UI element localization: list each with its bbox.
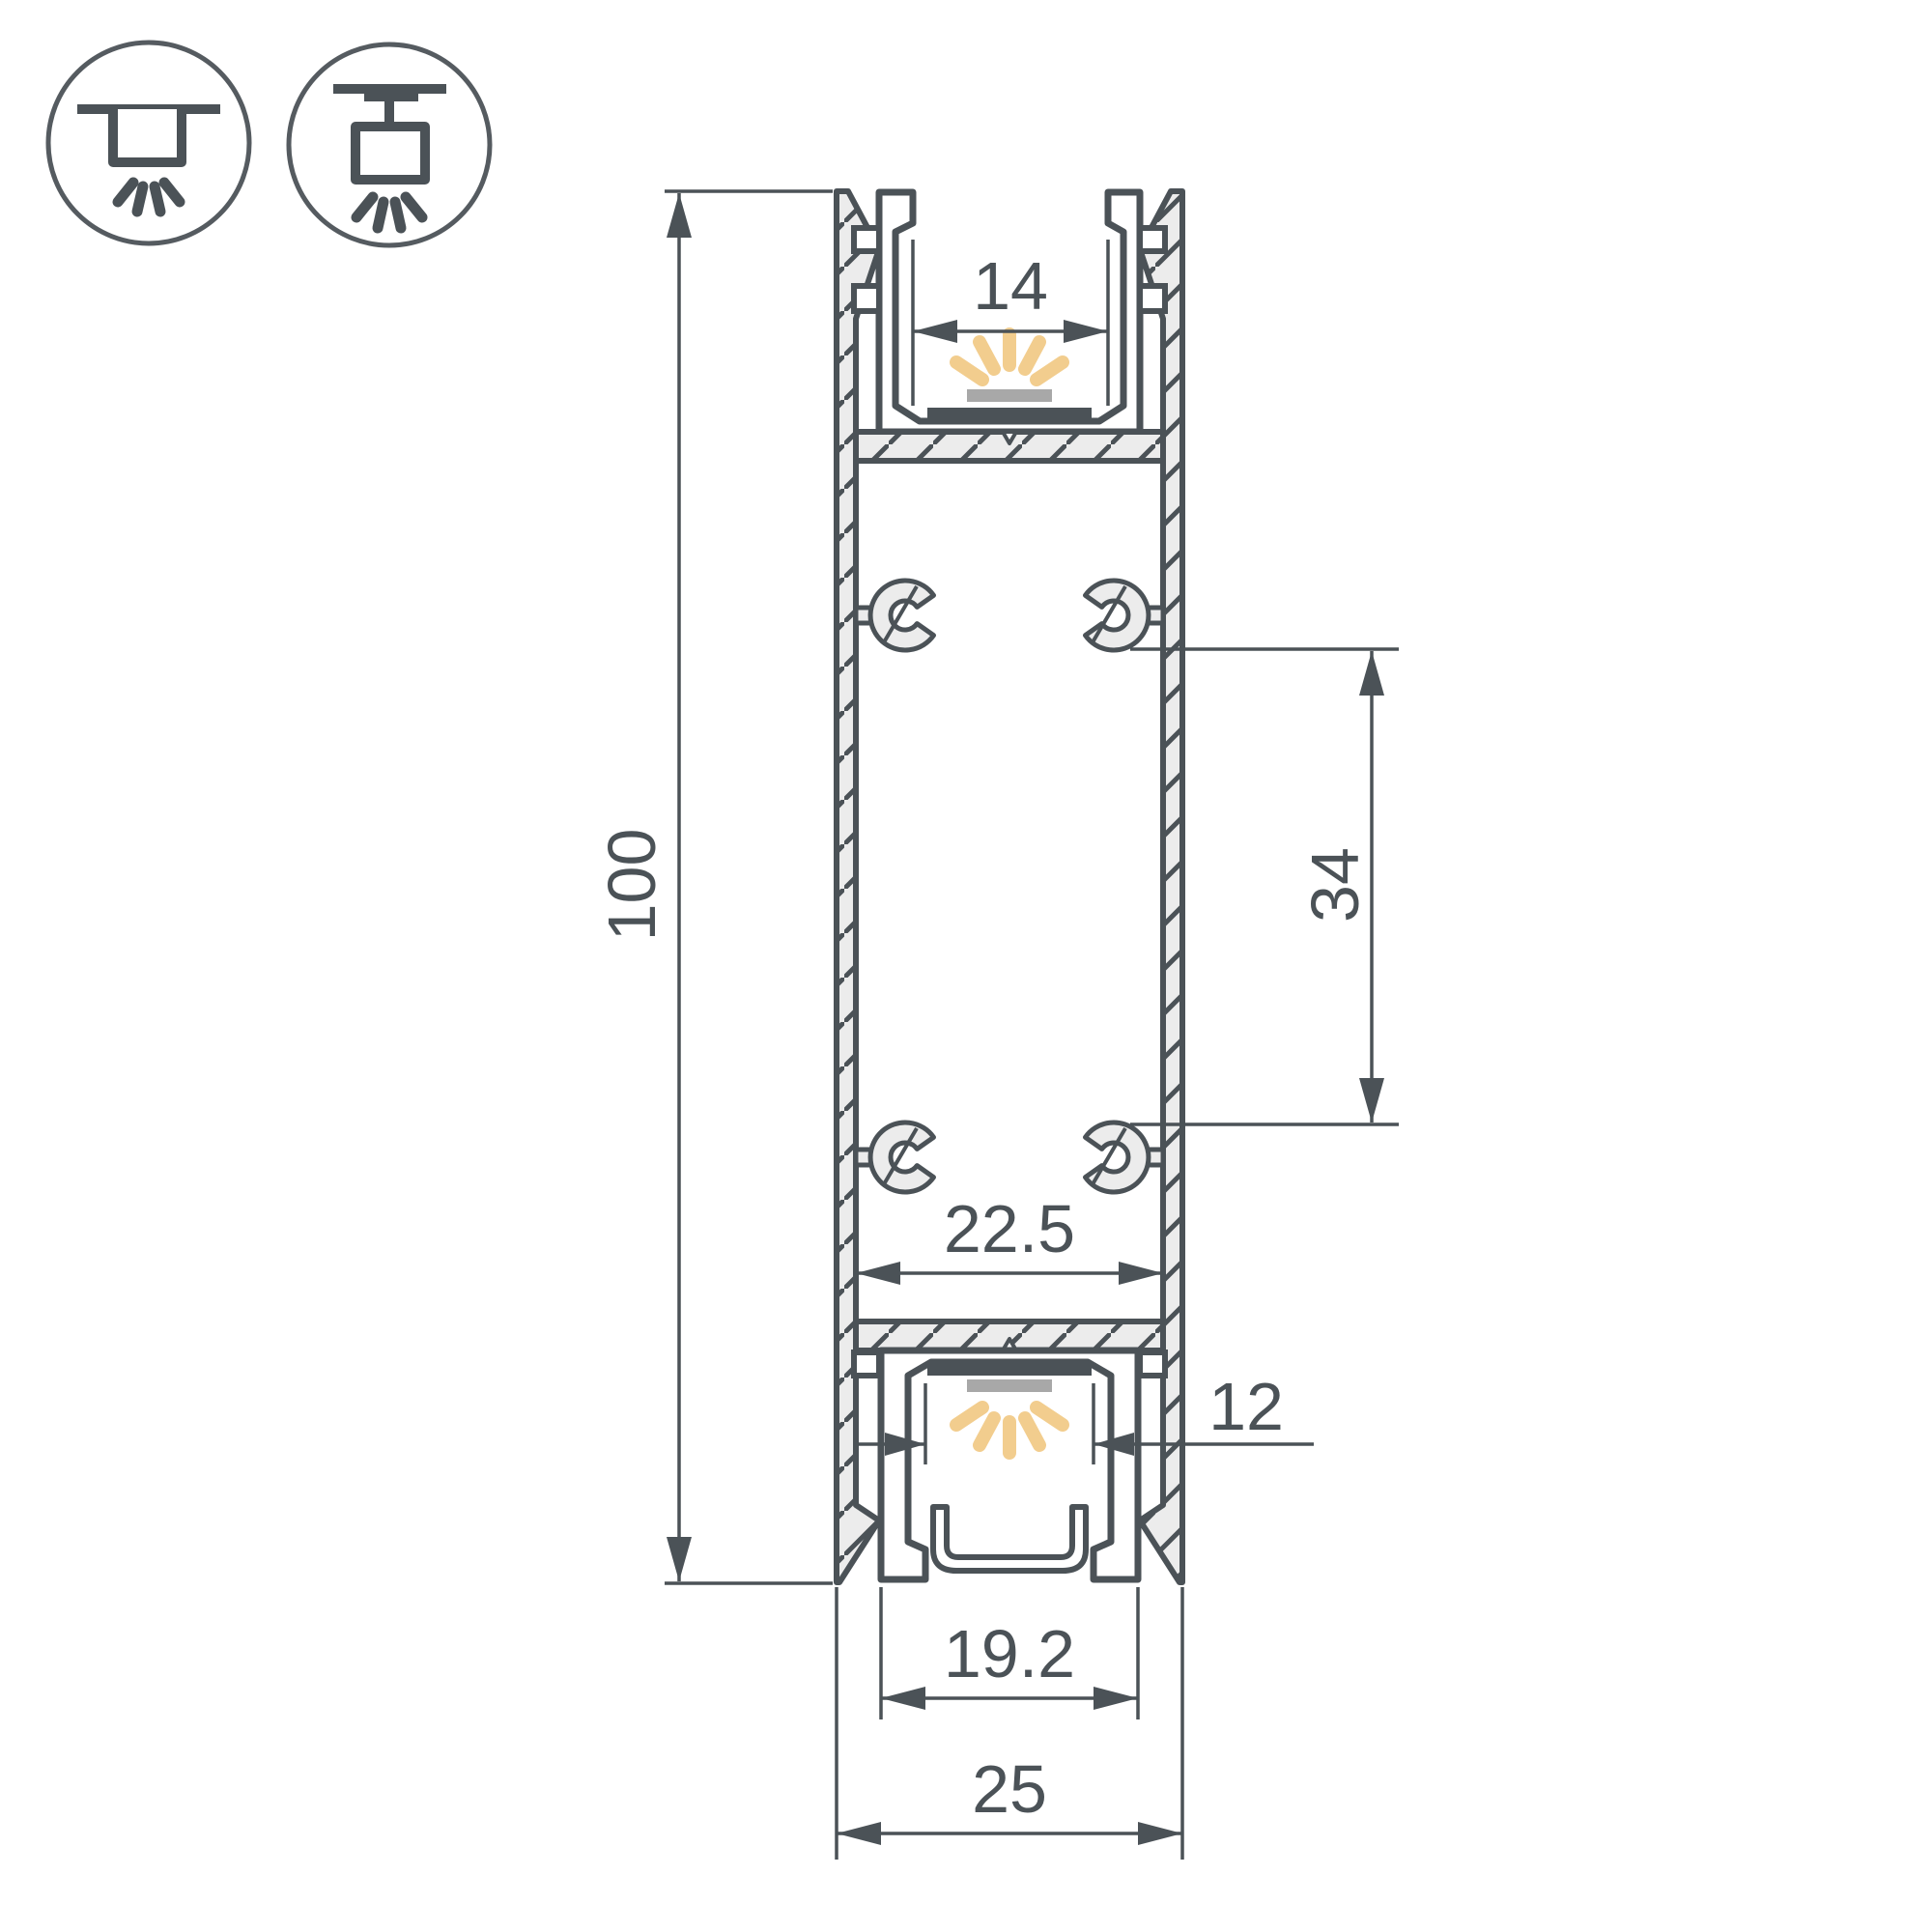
luminaire-box — [113, 109, 182, 162]
bottom-led-lens — [967, 1379, 1052, 1392]
dim-label-bottom-channel-width: 19.2 — [944, 1616, 1075, 1691]
top-led-pcb — [927, 408, 1092, 421]
light-rays-icon — [356, 197, 422, 228]
arrowhead — [1064, 320, 1108, 343]
hook-pocket — [1140, 1352, 1165, 1376]
profile-cross-section — [837, 191, 1182, 1582]
top-light-rays — [956, 334, 1063, 380]
arrowhead — [1138, 1822, 1182, 1845]
dim-label-top-opening: 14 — [973, 248, 1048, 324]
dim-label-bottom-opening: 12 — [1208, 1369, 1284, 1444]
bottom-diffuser — [933, 1507, 1086, 1571]
arrowhead — [881, 1687, 925, 1710]
screw-boss — [870, 1122, 933, 1192]
arrowhead — [667, 193, 692, 238]
dim-label-boss-spacing: 34 — [1297, 847, 1373, 923]
dim-label-inner-width: 22.5 — [944, 1191, 1075, 1266]
screw-boss — [870, 581, 933, 650]
recessed-mount-icon — [48, 43, 249, 243]
arrowhead — [1094, 1687, 1138, 1710]
hook-pocket — [854, 1352, 879, 1376]
arrowhead — [1119, 1262, 1163, 1285]
dimension-labels: 100 14 34 22.5 12 19.2 25 — [594, 248, 1373, 1827]
hook-pocket — [854, 286, 879, 311]
arrowhead — [667, 1537, 692, 1581]
dimension-overall-height — [665, 191, 833, 1583]
arrowhead — [1359, 651, 1384, 696]
luminaire-box — [355, 127, 425, 180]
hook-pocket — [1140, 286, 1165, 311]
arrowhead — [856, 1262, 900, 1285]
dim-label-overall-height: 100 — [594, 829, 669, 942]
profile-technical-drawing: 100 14 34 22.5 12 19.2 25 — [0, 0, 1932, 1932]
hook-pocket — [1140, 228, 1165, 251]
arrowhead — [1359, 1078, 1384, 1122]
arrowhead — [913, 320, 957, 343]
drawing-page: 100 14 34 22.5 12 19.2 25 — [0, 0, 1932, 1932]
surface-mount-icon — [289, 44, 490, 245]
screw-bosses — [856, 581, 1163, 1192]
dim-label-overall-width: 25 — [972, 1751, 1047, 1827]
boss-hatch-marks — [884, 586, 1125, 1184]
top-led-lens — [967, 389, 1052, 402]
bottom-light-rays — [956, 1407, 1063, 1453]
light-rays-icon — [118, 183, 180, 212]
arrowhead — [837, 1822, 881, 1845]
bottom-led-pcb — [927, 1362, 1092, 1376]
hook-pocket — [854, 228, 879, 251]
mount-type-icons — [48, 43, 490, 245]
